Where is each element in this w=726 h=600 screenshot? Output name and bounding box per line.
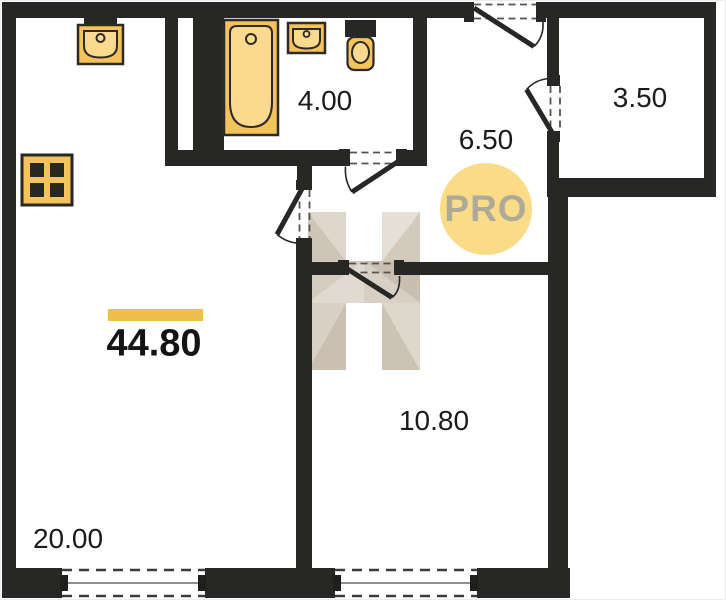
- toilet-icon: [345, 20, 376, 70]
- room-area-label-bedroom: 10.80: [399, 405, 469, 437]
- total-area-label: 44.80: [106, 323, 201, 366]
- room-area-label-hallway: 6.50: [459, 124, 514, 156]
- living-room-door: [277, 180, 312, 248]
- balcony-door: [527, 75, 561, 142]
- washbasin-icon: [288, 23, 325, 53]
- room-area-label-living: 20.00: [33, 523, 103, 555]
- window-right: [333, 569, 478, 597]
- bathroom-door: [339, 149, 407, 192]
- pro-badge-text: PRO: [444, 188, 527, 230]
- room-area-label-balcony: 3.50: [613, 82, 668, 114]
- pro-badge: PRO: [440, 163, 532, 255]
- stove-icon: [22, 155, 72, 205]
- bedroom-door: [338, 260, 404, 298]
- window-left: [60, 569, 206, 597]
- entry-door: [464, 2, 546, 47]
- total-area-accent-bar: [108, 309, 203, 321]
- floor-plan: 44.80 20.00 10.80 6.50 4.00 3.50 PRO: [0, 0, 726, 600]
- room-area-label-bathroom: 4.00: [298, 85, 353, 117]
- kitchen-sink-icon: [78, 16, 123, 64]
- bathtub-icon: [224, 20, 278, 135]
